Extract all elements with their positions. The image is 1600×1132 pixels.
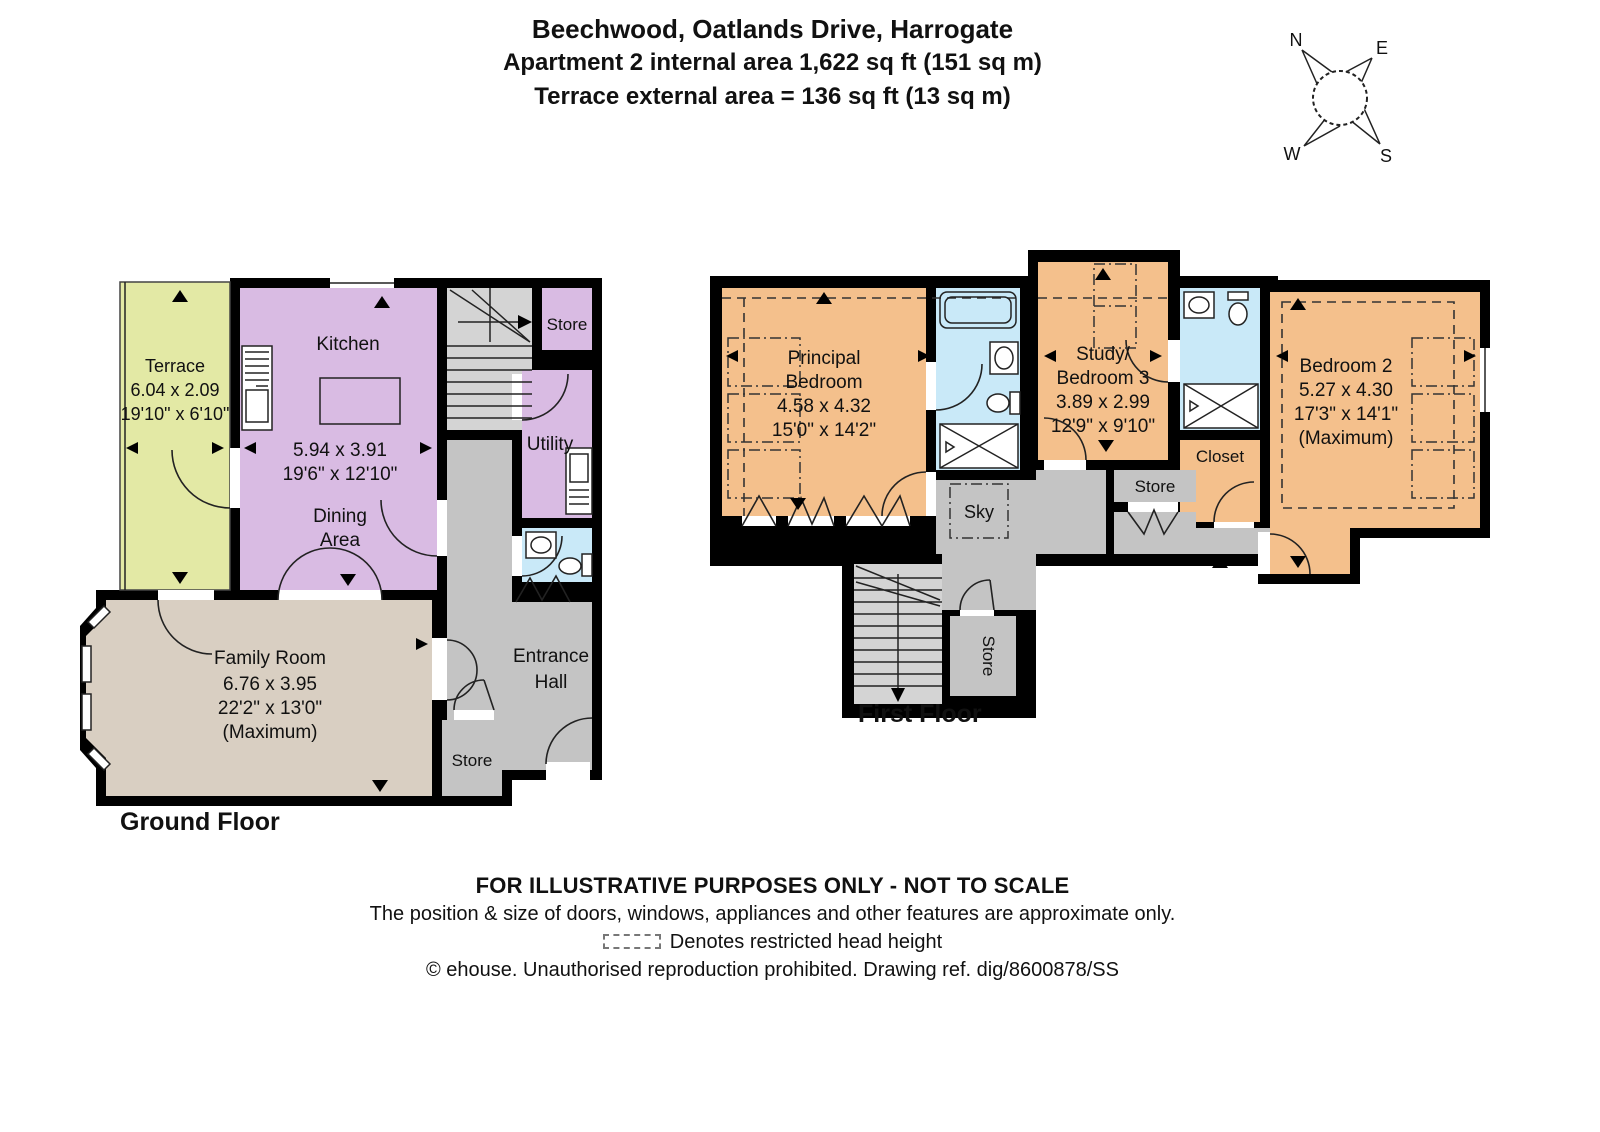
closet-label: Closet xyxy=(1196,447,1244,466)
bedroom2-label: Bedroom 2 xyxy=(1300,356,1393,377)
dining-label-2: Area xyxy=(320,530,361,551)
study-dims-ft: 12'9" x 9'10" xyxy=(1051,416,1155,437)
compass-star xyxy=(1302,50,1380,146)
bedroom2-dims-ft: 17'3" x 14'1" xyxy=(1294,404,1398,425)
ground-floor-plan: Terrace 6.04 x 2.09 19'10" x 6'10" Kitch… xyxy=(80,250,604,808)
floorplan-page: Beechwood, Oatlands Drive, Harrogate Apa… xyxy=(0,0,1600,1132)
footer-copyright: © ehouse. Unauthorised reproduction proh… xyxy=(0,956,1545,984)
restricted-height-key-icon xyxy=(603,934,661,949)
footer-key-line: Denotes restricted head height xyxy=(0,928,1545,956)
footer-disclaimer: FOR ILLUSTRATIVE PURPOSES ONLY - NOT TO … xyxy=(0,872,1545,900)
terrace-label: Terrace xyxy=(145,356,205,376)
kitchen-label: Kitchen xyxy=(316,334,379,355)
skylight-label: Sky xyxy=(964,502,994,522)
principal-dims-ft: 15'0" x 14'2" xyxy=(772,420,876,441)
footer-approximate-note: The position & size of doors, windows, a… xyxy=(0,900,1545,928)
principal-dims-m: 4.58 x 4.32 xyxy=(777,396,871,417)
study-label-2: Bedroom 3 xyxy=(1057,368,1150,389)
kitchen-dims-ft: 19'6" x 12'10" xyxy=(283,464,398,485)
family-max: (Maximum) xyxy=(223,722,318,743)
kitchen-sink-unit xyxy=(242,346,272,430)
principal-label-2: Bedroom xyxy=(785,372,862,393)
hall-label-2: Hall xyxy=(535,672,568,693)
study-label-1: Study/ xyxy=(1076,344,1131,365)
bedroom2-dims-m: 5.27 x 4.30 xyxy=(1299,380,1393,401)
principal-label-1: Principal xyxy=(788,348,861,369)
ground-floor-label: Ground Floor xyxy=(120,808,280,837)
footer-notes: FOR ILLUSTRATIVE PURPOSES ONLY - NOT TO … xyxy=(0,872,1545,984)
store-top-label: Store xyxy=(547,315,588,334)
hall-label-1: Entrance xyxy=(513,646,589,667)
compass-east-label: E xyxy=(1376,38,1388,58)
family-label: Family Room xyxy=(214,648,326,669)
room-terrace xyxy=(120,282,230,590)
dining-label-1: Dining xyxy=(313,506,367,527)
store-mid-label: Store xyxy=(1135,477,1176,496)
footer-key-text: Denotes restricted head height xyxy=(670,931,942,953)
compass-rose-icon: N E W S xyxy=(1262,18,1412,168)
store-bottom-label: Store xyxy=(452,751,493,770)
compass-north-label: N xyxy=(1290,30,1303,50)
utility-sink-unit xyxy=(566,448,592,514)
terrace-dims-ft: 19'10" x 6'10" xyxy=(121,404,230,424)
first-floor-label: First Floor xyxy=(858,700,982,729)
family-dims-m: 6.76 x 3.95 xyxy=(223,674,317,695)
terrace-dims-m: 6.04 x 2.09 xyxy=(130,380,219,400)
study-dims-m: 3.89 x 2.99 xyxy=(1056,392,1150,413)
first-floor-plan: Principal Bedroom 4.58 x 4.32 15'0" x 14… xyxy=(698,244,1494,722)
kitchen-dims-m: 5.94 x 3.91 xyxy=(293,440,387,461)
bedroom2-max: (Maximum) xyxy=(1299,428,1394,449)
compass-west-label: W xyxy=(1284,144,1301,164)
family-dims-ft: 22'2" x 13'0" xyxy=(218,698,322,719)
store-stair-label: Store xyxy=(979,636,998,677)
compass-south-label: S xyxy=(1380,146,1392,166)
utility-label: Utility xyxy=(527,434,574,455)
